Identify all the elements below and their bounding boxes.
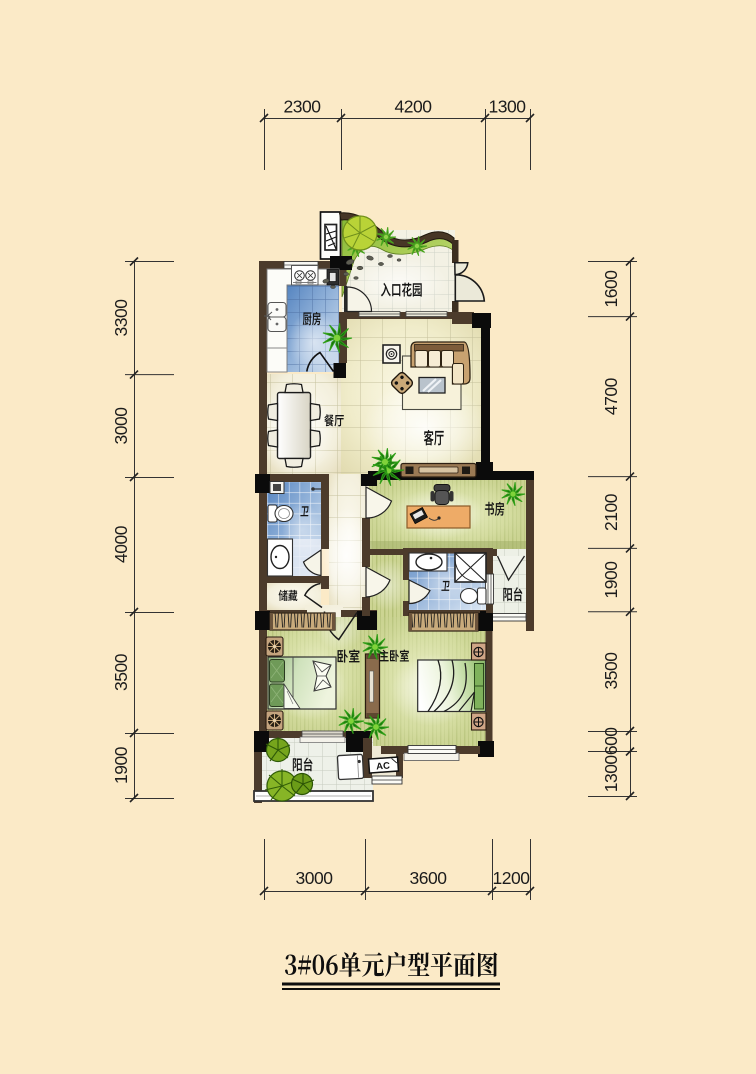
svg-text:1300: 1300 — [489, 97, 527, 117]
svg-text:2100: 2100 — [601, 493, 621, 531]
svg-text:3000: 3000 — [111, 407, 131, 445]
svg-text:4000: 4000 — [111, 525, 131, 563]
svg-text:1300: 1300 — [601, 755, 621, 793]
svg-text:1200: 1200 — [493, 868, 531, 888]
svg-text:3300: 3300 — [111, 299, 131, 337]
svg-text:1900: 1900 — [601, 561, 621, 599]
svg-text:3500: 3500 — [111, 653, 131, 691]
svg-text:AC: AC — [376, 761, 391, 773]
svg-text:1900: 1900 — [111, 746, 131, 784]
svg-text:4700: 4700 — [601, 377, 621, 415]
svg-text:1600: 1600 — [601, 270, 621, 308]
svg-text:3000: 3000 — [296, 868, 334, 888]
svg-text:3600: 3600 — [410, 868, 448, 888]
svg-text:2300: 2300 — [284, 97, 322, 117]
svg-text:4200: 4200 — [395, 97, 433, 117]
svg-text:3500: 3500 — [601, 652, 621, 690]
svg-text:600: 600 — [601, 727, 621, 755]
